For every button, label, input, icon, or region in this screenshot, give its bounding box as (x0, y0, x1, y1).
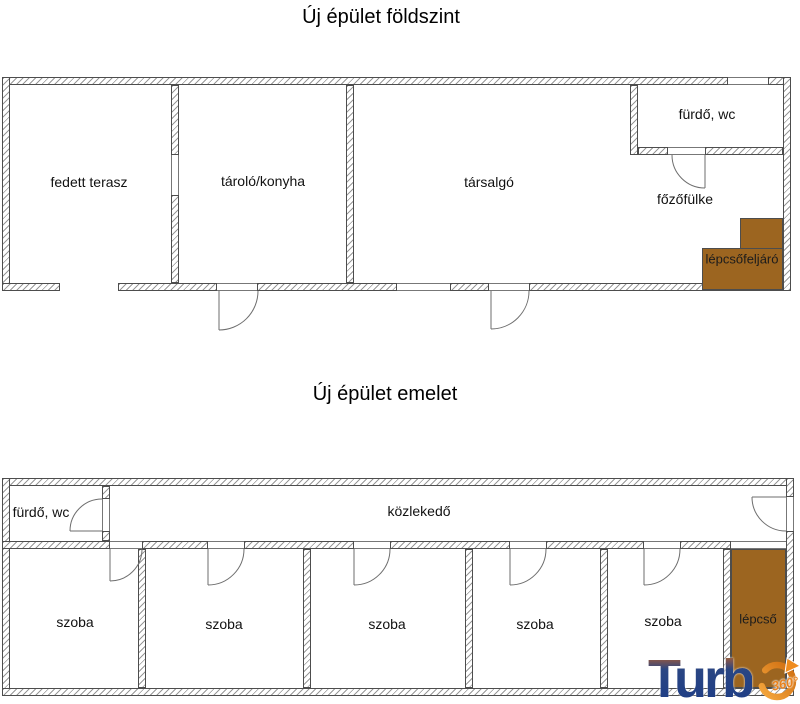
window-opening (397, 283, 450, 291)
turbo360-wordmark: Turb (648, 652, 752, 704)
wall (257, 283, 397, 291)
door-opening (102, 499, 110, 531)
wall (390, 541, 510, 549)
door-arc (70, 499, 102, 531)
wall (705, 147, 783, 155)
door-opening (110, 541, 142, 549)
door-opening (668, 147, 705, 155)
door-opening (354, 541, 390, 549)
room-label-furdo-wc-upper: fürdő, wc (13, 504, 70, 520)
door-arc (208, 549, 244, 585)
room-label-szoba-5: szoba (644, 613, 681, 629)
door-opening (217, 283, 257, 291)
wall (2, 478, 794, 486)
wall (303, 549, 311, 688)
room-label-furdo-wc-ground: fürdő, wc (679, 106, 736, 122)
wall (546, 541, 644, 549)
stairway-upper-step (740, 218, 783, 249)
wall (630, 85, 638, 155)
wall (118, 283, 217, 291)
wall (138, 549, 146, 688)
wall (2, 478, 10, 696)
wall (2, 77, 10, 291)
room-label-szoba-1: szoba (56, 614, 93, 630)
wall (450, 283, 489, 291)
room-label-szoba-4: szoba (516, 616, 553, 632)
wall (600, 549, 608, 688)
door-arc (752, 497, 786, 531)
wall (2, 77, 728, 85)
upper-floor-title: Új épület emelet (313, 383, 458, 406)
floor-plan-page: Új épület földszint fedett terasz tároló… (0, 0, 800, 704)
door-arc (491, 291, 529, 329)
room-label-kozlekedo: közlekedő (387, 503, 450, 519)
door-arc (510, 549, 546, 585)
room-label-tarolo-konyha: tároló/konyha (221, 173, 305, 189)
window-opening (728, 77, 768, 85)
room-label-lepcsofeljaro: lépcsőfeljáró (706, 252, 779, 267)
wall (2, 283, 60, 291)
room-label-lepcso: lépcső (739, 612, 777, 627)
room-label-fedett-terasz: fedett terasz (50, 174, 127, 190)
room-label-tarsalgo: társalgó (464, 174, 514, 190)
wall (244, 541, 354, 549)
wall (102, 531, 110, 541)
ground-floor-title: Új épület földszint (302, 6, 460, 29)
room-label-szoba-3: szoba (368, 616, 405, 632)
door-arc (672, 155, 705, 188)
wall (171, 85, 179, 155)
wall (783, 77, 791, 291)
wall (465, 549, 473, 688)
door-opening (786, 497, 794, 531)
door-opening (510, 541, 546, 549)
door-arc (644, 549, 680, 585)
room-label-fozofulke: főzőfülke (657, 191, 713, 207)
wall (638, 147, 668, 155)
stairs-opening (731, 541, 786, 549)
door-opening (644, 541, 680, 549)
door-arc (354, 549, 390, 585)
wall (786, 478, 794, 497)
room-label-szoba-2: szoba (205, 616, 242, 632)
door-arc (219, 291, 258, 330)
wall (171, 195, 179, 283)
wall (2, 541, 110, 549)
door-opening (489, 283, 529, 291)
wall (142, 541, 208, 549)
window-opening (171, 155, 179, 195)
door-opening (208, 541, 244, 549)
wall (680, 541, 731, 549)
turbo360-logo: Turb 360° (646, 650, 800, 704)
wall (102, 486, 110, 499)
wall (346, 85, 354, 283)
